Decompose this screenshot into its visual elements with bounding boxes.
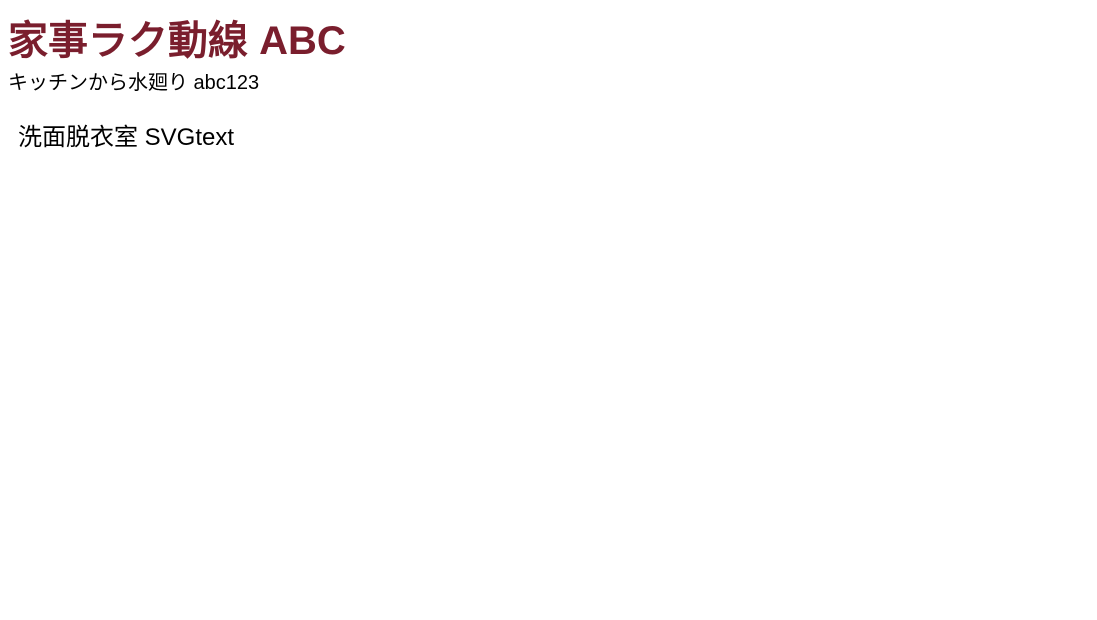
svg-text:洗面脱衣室 SVGtext: 洗面脱衣室 SVGtext: [18, 124, 234, 151]
